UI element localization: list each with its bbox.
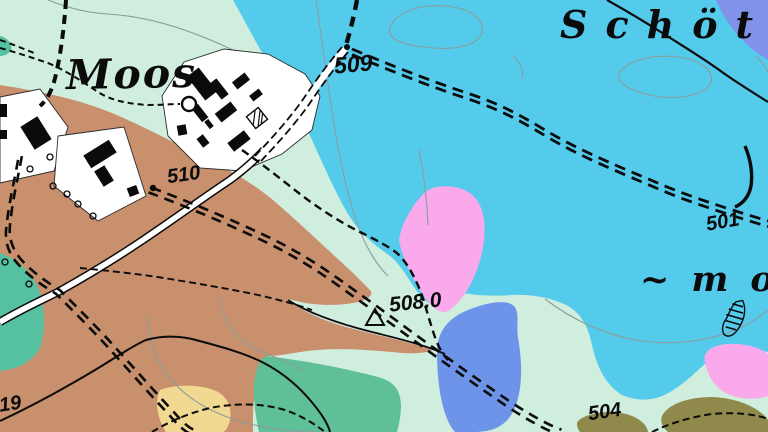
spot-height-501: 501 <box>705 209 741 234</box>
spot-height-504: 504 <box>587 400 623 424</box>
spot-height-508: 508.0 <box>388 289 442 315</box>
region-label-schoetmoos-line2: ~mo <box>640 262 768 297</box>
spot-height-510: 510 <box>166 163 202 187</box>
map-canvas[interactable]: Moos Schötm ~mo 509 510 508.0 501 504 51… <box>0 0 768 432</box>
spot-height-519: 519 <box>0 393 23 417</box>
round-tank <box>182 97 196 111</box>
junction-509-dot <box>344 44 350 50</box>
place-label-moos: Moos <box>66 53 198 96</box>
building <box>177 124 188 135</box>
spot-height-509: 509 <box>333 51 373 77</box>
building <box>0 104 7 117</box>
building <box>0 130 7 139</box>
region-label-schoetmoos-line1: Schötm <box>560 6 768 44</box>
